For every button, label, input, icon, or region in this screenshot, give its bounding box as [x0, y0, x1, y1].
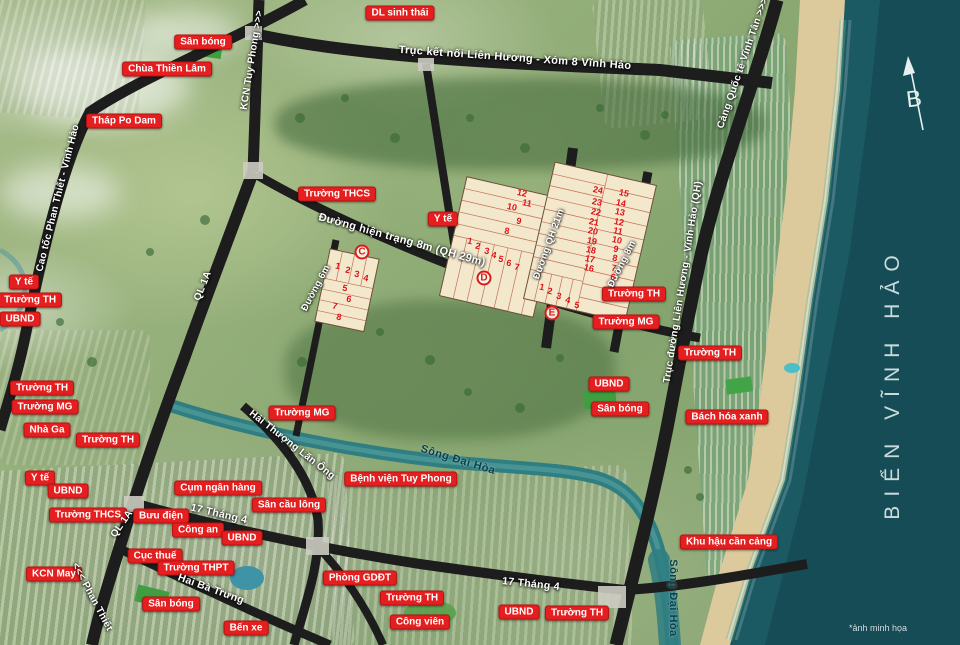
poi-label: Tháp Po Dam [86, 114, 162, 129]
lot-number: 7 [332, 301, 339, 312]
road-label: QL 1A [192, 270, 214, 303]
poi-label: UBND [0, 312, 40, 327]
poi-label: Sân bóng [174, 35, 232, 50]
poi-label: Bách hóa xanh [685, 410, 768, 425]
poi-label: Cụm ngân hàng [174, 481, 262, 496]
poi-label: Trường THCS [298, 187, 376, 202]
poi-label: Sân cầu lông [252, 498, 326, 513]
poi-label: Công viên [390, 615, 450, 630]
lot-number: 2 [547, 286, 554, 297]
lot-number: 2 [345, 265, 352, 276]
poi-label: Trường MG [269, 406, 336, 421]
labels-layer: BIỂN VĨNH HẢO *ảnh minh họa B Sân bóngCh… [0, 0, 960, 645]
lot-number: 8 [504, 226, 511, 237]
lot-number: 4 [565, 295, 572, 306]
road-label: Đường 6m [299, 263, 333, 313]
lot-number: 7 [514, 262, 521, 273]
lot-number: 5 [342, 283, 349, 294]
lot-number: 1 [335, 261, 342, 272]
watermark-note: *ảnh minh họa [849, 623, 907, 633]
lot-number: 24 [592, 184, 604, 196]
road-label: Đường QH 21m [531, 207, 567, 281]
poi-label: UBND [222, 531, 263, 546]
lot-number: 4 [363, 273, 370, 284]
lot-number: 23 [591, 196, 603, 208]
map-canvas: BIỂN VĨNH HẢO *ảnh minh họa B Sân bóngCh… [0, 0, 960, 645]
poi-label: Công an [172, 523, 224, 538]
poi-label: Khu hậu cần cảng [680, 535, 778, 550]
poi-label: Trường TH [678, 346, 742, 361]
lot-number: 10 [506, 201, 518, 213]
poi-label: Trường MG [593, 315, 660, 330]
poi-label: Sân bóng [591, 402, 649, 417]
block-marker-D: D [477, 271, 492, 286]
poi-label: Trường TH [10, 381, 74, 396]
poi-label: Trường TH [602, 287, 666, 302]
road-label: KCN Tuy Phong >>> [239, 9, 266, 110]
poi-label: Trường TH [0, 293, 62, 308]
poi-label: Trường MG [12, 400, 79, 415]
lot-number: 1 [539, 282, 546, 293]
poi-label: UBND [499, 605, 540, 620]
block-marker-E: E [545, 306, 560, 321]
lot-number: 5 [574, 300, 581, 311]
lot-number: 9 [516, 216, 523, 227]
lot-number: 11 [521, 197, 532, 209]
road-label: Cảng Quốc tế Vĩnh Tân >>> [715, 0, 770, 130]
road-label: 17 Tháng 4 [502, 575, 561, 593]
lot-number: 12 [516, 187, 528, 199]
lot-number: 14 [615, 197, 627, 209]
poi-label: UBND [589, 377, 630, 392]
road-label: Đường hiện trạng 8m (QH 29m) [317, 211, 487, 269]
poi-label: Phòng GDĐT [323, 571, 397, 586]
lot-number: 15 [618, 187, 630, 199]
poi-label: Trường TH [545, 606, 609, 621]
poi-label: Bệnh viện Tuy Phong [344, 472, 457, 487]
poi-label: Bến xe [224, 621, 269, 636]
lot-number: 21 [588, 216, 600, 228]
lot-number: 6 [506, 258, 513, 269]
road-label: Trục kết nối Liên Hương - Xóm 8 Vĩnh Hảo [398, 44, 631, 72]
poi-label: DL sinh thái [365, 6, 434, 21]
block-marker-C: C [355, 245, 370, 260]
road-label: Cao tốc Phan Thiết - Vĩnh Hảo [34, 123, 81, 273]
lot-number: 3 [556, 291, 563, 302]
poi-label: Nhà Ga [23, 423, 70, 438]
compass-north-letter: B [905, 85, 924, 114]
poi-label: Y tế [9, 275, 39, 290]
poi-label: Chùa Thiền Lâm [122, 62, 212, 77]
poi-label: Trường TH [380, 591, 444, 606]
lot-number: 6 [346, 294, 353, 305]
lot-number: 2 [475, 241, 482, 252]
poi-label: Sân bóng [142, 597, 200, 612]
river-label: Sông Đại Hòa [667, 559, 679, 637]
lot-number: 3 [484, 246, 491, 257]
poi-label: Trường TH [76, 433, 140, 448]
poi-label: Y tế [428, 212, 458, 227]
poi-label: Trường THCS [49, 508, 127, 523]
lot-number: 5 [498, 254, 505, 265]
lot-number: 1 [467, 236, 474, 247]
poi-label: Trường THPT [158, 561, 235, 576]
poi-label: UBND [48, 484, 89, 499]
lot-number: 8 [336, 312, 343, 323]
lot-number: 3 [354, 269, 361, 280]
sea-name-label: BIỂN VĨNH HẢO [881, 246, 905, 519]
lot-number: 4 [491, 250, 498, 261]
poi-label: Bưu điện [133, 509, 189, 524]
road-label: <<< Phan Thiết [69, 561, 114, 633]
